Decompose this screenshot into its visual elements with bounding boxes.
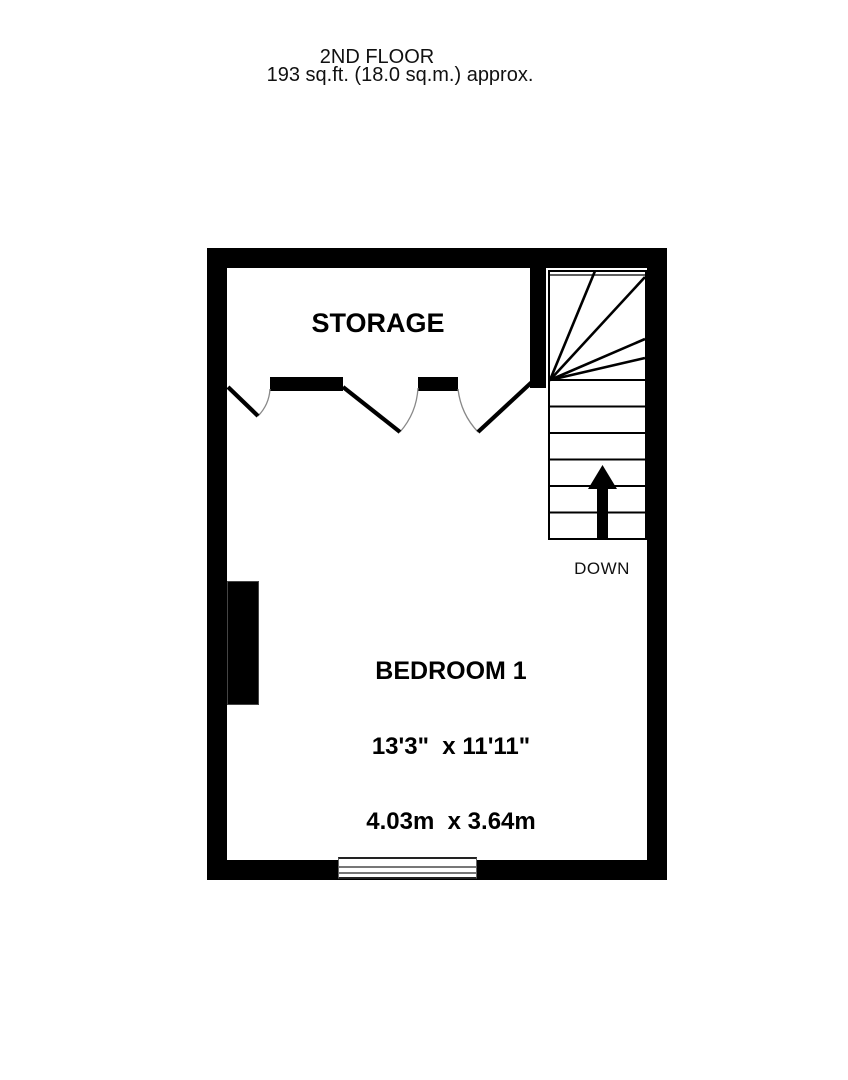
floorplan-page: 2ND FLOOR 193 sq.ft. (18.0 sq.m.) approx…: [0, 0, 848, 1080]
arrow-shaft: [597, 487, 608, 539]
chimney-breast: [227, 581, 259, 705]
storage-doors: [227, 375, 548, 440]
door-swing-arc: [258, 389, 270, 416]
floor-plan: STORAGE: [207, 248, 667, 880]
storage-room-label: STORAGE: [311, 308, 444, 339]
door-leaf: [343, 387, 400, 432]
door-swing-arc: [400, 388, 418, 432]
bedroom-size-imperial: 13'3" x 11'11": [366, 734, 535, 759]
door-swing-arc: [458, 389, 478, 432]
door-leaf: [478, 381, 533, 432]
bedroom-size-metric: 4.03m x 3.64m: [366, 809, 535, 834]
stairs-down-label: DOWN: [574, 559, 630, 579]
floor-area-text: 193 sq.ft. (18.0 sq.m.) approx.: [267, 65, 534, 85]
staircase: [548, 270, 647, 540]
door-leaves: [228, 381, 533, 432]
bedroom-label-block: BEDROOM 1 13'3" x 11'11" 4.03m x 3.64m: [366, 609, 535, 884]
door-swing-arcs: [258, 388, 478, 432]
interior-wall-stairs: [530, 268, 546, 388]
bedroom-name: BEDROOM 1: [366, 659, 535, 684]
door-leaf: [228, 387, 258, 416]
